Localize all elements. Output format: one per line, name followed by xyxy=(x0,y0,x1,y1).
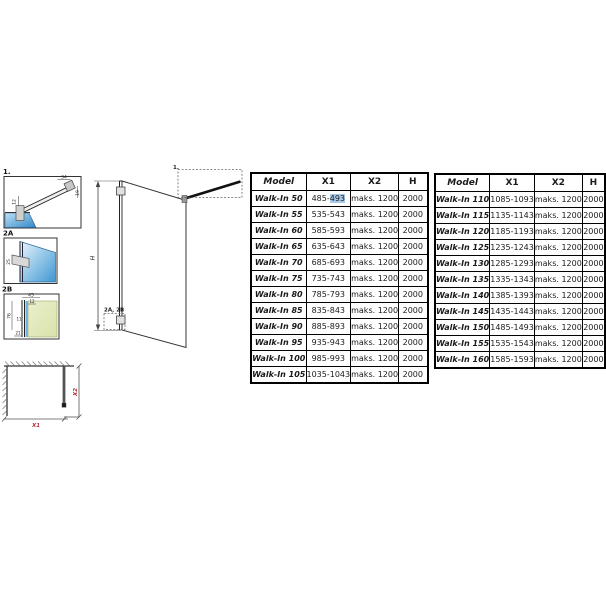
model-cell: Walk-In 100 xyxy=(251,351,306,367)
col-header: X2 xyxy=(351,173,399,191)
table-row: Walk-In 50485-493maks. 12002000 xyxy=(251,191,428,207)
x2-cell: maks. 1200 xyxy=(534,336,582,352)
model-cell: Walk-In 65 xyxy=(251,239,306,255)
table-row: Walk-In 1601585-1593maks. 12002000 xyxy=(435,352,605,369)
table-row: Walk-In 70685-693maks. 12002000 xyxy=(251,255,428,271)
x1-cell: 1235-1243 xyxy=(490,240,535,256)
table-row: Walk-In 55535-543maks. 12002000 xyxy=(251,207,428,223)
h-cell: 2000 xyxy=(582,208,605,224)
top-bracket-shape xyxy=(117,187,126,195)
support-bar-elevation xyxy=(185,182,241,199)
table-row: Walk-In 1301285-1293maks. 12002000 xyxy=(435,256,605,272)
h-cell: 2000 xyxy=(582,272,605,288)
model-cell: Walk-In 150 xyxy=(435,320,490,336)
h-cell: 2000 xyxy=(399,207,428,223)
x1-cell: 1435-1443 xyxy=(490,304,535,320)
x2-cell: maks. 1200 xyxy=(534,192,582,208)
col-header: H xyxy=(399,173,428,191)
table-row: Walk-In 1351335-1343maks. 12002000 xyxy=(435,272,605,288)
model-cell: Walk-In 120 xyxy=(435,224,490,240)
model-cell: Walk-In 80 xyxy=(251,287,306,303)
x1-cell: 1285-1293 xyxy=(490,256,535,272)
detail-1-label: 1. xyxy=(3,168,11,176)
table-row: Walk-In 85835-843maks. 12002000 xyxy=(251,303,428,319)
h-cell: 2000 xyxy=(582,352,605,369)
wall-clamp-shape xyxy=(16,206,24,221)
x2-cell: maks. 1200 xyxy=(534,304,582,320)
dim-profile-width: 45 xyxy=(28,293,34,299)
header-row: ModelX1X2H xyxy=(435,174,605,192)
x2-cell: maks. 1200 xyxy=(351,351,399,367)
h-cell: 2000 xyxy=(399,271,428,287)
x2-cell: maks. 1200 xyxy=(534,240,582,256)
glass-section-shape xyxy=(26,301,28,337)
h-cell: 2000 xyxy=(582,192,605,208)
dim-bar-width: 34 xyxy=(61,175,67,181)
header-row: ModelX1X2H xyxy=(251,173,428,191)
h-cell: 2000 xyxy=(399,319,428,335)
x1-cell: 885-893 xyxy=(306,319,351,335)
spec-table-right: ModelX1X2HWalk-In 1101085-1093maks. 1200… xyxy=(434,173,606,369)
x1-cell: 535-543 xyxy=(306,207,351,223)
detail-2a-label: 2A xyxy=(3,230,14,238)
spec-table-left: ModelX1X2HWalk-In 50485-493maks. 1200200… xyxy=(250,172,429,384)
model-cell: Walk-In 50 xyxy=(251,191,306,207)
x1-cell: 1335-1343 xyxy=(490,272,535,288)
model-cell: Walk-In 115 xyxy=(435,208,490,224)
glass-elevation-shape xyxy=(122,181,186,348)
x1-cell: 635-643 xyxy=(306,239,351,255)
plan-x1-label: X1 xyxy=(31,423,40,429)
h-cell: 2000 xyxy=(399,191,428,207)
spec-sheet: 1. 34 19 12 2A 25 2B xyxy=(0,0,606,607)
x1-cell: 1085-1093 xyxy=(490,192,535,208)
model-cell: Walk-In 90 xyxy=(251,319,306,335)
h-cell: 2000 xyxy=(399,223,428,239)
h-cell: 2000 xyxy=(582,224,605,240)
x1-cell: 485-493 xyxy=(306,191,351,207)
h-cell: 2000 xyxy=(399,367,428,384)
support-bar-shape xyxy=(19,186,71,215)
table-row: Walk-In 95935-943maks. 12002000 xyxy=(251,335,428,351)
dim-bar-height: 19 xyxy=(75,190,81,196)
model-cell: Walk-In 140 xyxy=(435,288,490,304)
dim-profile-inner: 12 xyxy=(29,299,35,304)
col-header: X2 xyxy=(534,174,582,192)
h-cell: 2000 xyxy=(399,255,428,271)
table-row: Walk-In 60585-593maks. 12002000 xyxy=(251,223,428,239)
table-row: Walk-In 1051035-1043maks. 12002000 xyxy=(251,367,428,384)
h-cell: 2000 xyxy=(399,287,428,303)
x2-cell: maks. 1200 xyxy=(534,288,582,304)
dim-gap: 11 xyxy=(16,317,22,322)
x2-cell: maks. 1200 xyxy=(351,335,399,351)
table-row: Walk-In 65635-643maks. 12002000 xyxy=(251,239,428,255)
table-row: Walk-In 1201185-1193maks. 12002000 xyxy=(435,224,605,240)
model-cell: Walk-In 145 xyxy=(435,304,490,320)
x1-cell: 685-693 xyxy=(306,255,351,271)
table-row: Walk-In 1101085-1093maks. 12002000 xyxy=(435,192,605,208)
col-header: H xyxy=(582,174,605,192)
x2-cell: maks. 1200 xyxy=(351,319,399,335)
x1-cell: 1535-1543 xyxy=(490,336,535,352)
x1-cell: 985-993 xyxy=(306,351,351,367)
x2-cell: maks. 1200 xyxy=(351,239,399,255)
model-cell: Walk-In 75 xyxy=(251,271,306,287)
x2-cell: maks. 1200 xyxy=(351,223,399,239)
h-cell: 2000 xyxy=(399,303,428,319)
table-row: Walk-In 75735-743maks. 12002000 xyxy=(251,271,428,287)
h-cell: 2000 xyxy=(582,336,605,352)
model-cell: Walk-In 85 xyxy=(251,303,306,319)
x1-cell: 1485-1493 xyxy=(490,320,535,336)
x2-cell: maks. 1200 xyxy=(351,191,399,207)
x2-cell: maks. 1200 xyxy=(534,208,582,224)
x2-cell: maks. 1200 xyxy=(534,224,582,240)
table-row: Walk-In 1551535-1543maks. 12002000 xyxy=(435,336,605,352)
model-cell: Walk-In 135 xyxy=(435,272,490,288)
x2-cell: maks. 1200 xyxy=(351,207,399,223)
cell-text: 485- xyxy=(312,194,330,203)
col-header: X1 xyxy=(306,173,351,191)
table-row: Walk-In 100985-993maks. 12002000 xyxy=(251,351,428,367)
height-dim-label: H xyxy=(90,255,97,260)
h-cell: 2000 xyxy=(582,240,605,256)
model-cell: Walk-In 160 xyxy=(435,352,490,369)
model-cell: Walk-In 130 xyxy=(435,256,490,272)
x1-cell: 1385-1393 xyxy=(490,288,535,304)
table-row: Walk-In 80785-793maks. 12002000 xyxy=(251,287,428,303)
dim-bracket: 25 xyxy=(6,259,12,265)
h-cell: 2000 xyxy=(582,256,605,272)
table-row: Walk-In 1401385-1393maks. 12002000 xyxy=(435,288,605,304)
plan-view: X2 X1 xyxy=(2,362,82,430)
plan-x2-label: X2 xyxy=(73,388,79,397)
x1-cell: 1035-1043 xyxy=(306,367,351,384)
col-header: Model xyxy=(251,173,306,191)
x2-cell: maks. 1200 xyxy=(351,255,399,271)
elevation-view: H 1. 2A, 2B xyxy=(90,165,243,348)
h-cell: 2000 xyxy=(582,288,605,304)
x2-cell: maks. 1200 xyxy=(351,303,399,319)
model-cell: Walk-In 125 xyxy=(435,240,490,256)
wall-section-shape xyxy=(28,301,57,337)
dim-base: 21 xyxy=(15,331,21,336)
x2-cell: maks. 1200 xyxy=(534,256,582,272)
h-cell: 2000 xyxy=(399,351,428,367)
h-cell: 2000 xyxy=(399,239,428,255)
selected-text: 493 xyxy=(330,194,345,203)
x1-cell: 1185-1193 xyxy=(490,224,535,240)
detail-2b-label: 2B xyxy=(2,286,12,294)
table-row: Walk-In 1251235-1243maks. 12002000 xyxy=(435,240,605,256)
table-row: Walk-In 90885-893maks. 12002000 xyxy=(251,319,428,335)
model-cell: Walk-In 110 xyxy=(435,192,490,208)
x1-cell: 1585-1593 xyxy=(490,352,535,369)
x1-cell: 1135-1143 xyxy=(490,208,535,224)
detail-2b-view: 2B 45 12 76 11 21 xyxy=(2,286,59,340)
model-cell: Walk-In 70 xyxy=(251,255,306,271)
model-cell: Walk-In 60 xyxy=(251,223,306,239)
dim-profile-height: 76 xyxy=(7,313,13,319)
x2-cell: maks. 1200 xyxy=(534,272,582,288)
bottom-bracket-shape xyxy=(117,316,126,324)
x1-cell: 785-793 xyxy=(306,287,351,303)
table-row: Walk-In 1501485-1493maks. 12002000 xyxy=(435,320,605,336)
dim-clamp: 12 xyxy=(12,199,18,205)
x2-cell: maks. 1200 xyxy=(534,352,582,369)
x1-cell: 585-593 xyxy=(306,223,351,239)
h-cell: 2000 xyxy=(399,335,428,351)
x1-cell: 835-843 xyxy=(306,303,351,319)
x1-cell: 735-743 xyxy=(306,271,351,287)
x1-cell: 935-943 xyxy=(306,335,351,351)
detail-1-callout-label: 1. xyxy=(173,165,179,171)
model-cell: Walk-In 155 xyxy=(435,336,490,352)
detail-1-view: 1. 34 19 12 xyxy=(3,168,81,228)
model-cell: Walk-In 55 xyxy=(251,207,306,223)
x2-cell: maks. 1200 xyxy=(534,320,582,336)
col-header: X1 xyxy=(490,174,535,192)
h-cell: 2000 xyxy=(582,304,605,320)
h-cell: 2000 xyxy=(582,320,605,336)
x2-cell: maks. 1200 xyxy=(351,367,399,384)
detail-2ab-callout-label: 2A, 2B xyxy=(104,308,124,314)
table-row: Walk-In 1151135-1143maks. 12002000 xyxy=(435,208,605,224)
x2-cell: maks. 1200 xyxy=(351,271,399,287)
detail-2a-view: 2A 25 xyxy=(3,230,57,284)
table-row: Walk-In 1451435-1443maks. 12002000 xyxy=(435,304,605,320)
model-cell: Walk-In 95 xyxy=(251,335,306,351)
x2-cell: maks. 1200 xyxy=(351,287,399,303)
model-cell: Walk-In 105 xyxy=(251,367,306,384)
col-header: Model xyxy=(435,174,490,192)
